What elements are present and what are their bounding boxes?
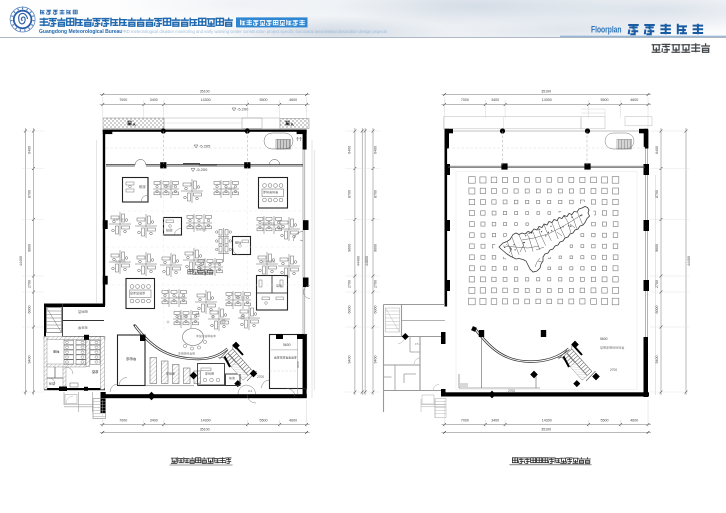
svg-text:Guangdong Meteorological Burea: Guangdong Meteorological Bureau [39, 29, 122, 35]
svg-text:14300: 14300 [201, 98, 211, 102]
svg-text:2700: 2700 [348, 280, 352, 288]
svg-text:44400: 44400 [687, 256, 691, 266]
svg-text:4600: 4600 [630, 419, 638, 423]
svg-text:5500: 5500 [260, 419, 268, 423]
svg-text:-5.205: -5.205 [199, 144, 211, 149]
svg-text:5500: 5500 [260, 98, 268, 102]
svg-text:7000: 7000 [461, 419, 469, 423]
svg-text:35100: 35100 [541, 428, 551, 432]
svg-text:14300: 14300 [201, 419, 211, 423]
svg-text:4600: 4600 [289, 98, 297, 102]
svg-text:35100: 35100 [200, 89, 210, 93]
svg-text:7000: 7000 [461, 98, 469, 102]
svg-text:6000: 6000 [28, 306, 32, 314]
svg-text:9400: 9400 [374, 356, 378, 364]
svg-text:2700: 2700 [374, 280, 378, 288]
svg-text:3400: 3400 [491, 419, 499, 423]
svg-text:5600: 5600 [283, 343, 291, 347]
svg-text:5500: 5500 [601, 419, 609, 423]
svg-text:3400: 3400 [150, 98, 158, 102]
svg-text:14300: 14300 [542, 98, 552, 102]
svg-text:44800: 44800 [365, 256, 369, 266]
svg-text:-5.200: -5.200 [196, 167, 208, 172]
svg-text:8700: 8700 [348, 190, 352, 198]
svg-text:3-1: 3-1 [248, 389, 253, 393]
svg-text:8700: 8700 [655, 190, 659, 198]
svg-text:PRD meteorological disaster mo: PRD meteorological disaster monitoring a… [121, 29, 387, 34]
svg-text:9600: 9600 [348, 244, 352, 252]
svg-text:7000: 7000 [119, 98, 127, 102]
svg-text:2700: 2700 [610, 368, 617, 372]
svg-text:9400: 9400 [655, 356, 659, 364]
svg-text:6400: 6400 [28, 146, 32, 154]
svg-text:14300: 14300 [542, 419, 552, 423]
svg-text:6400: 6400 [348, 146, 352, 154]
svg-text:6000: 6000 [348, 306, 352, 314]
svg-text:9600: 9600 [655, 244, 659, 252]
svg-text:9400: 9400 [28, 356, 32, 364]
svg-text:2700: 2700 [28, 280, 32, 288]
svg-text:3400: 3400 [491, 98, 499, 102]
svg-text:44400: 44400 [357, 256, 361, 266]
svg-text:6400: 6400 [655, 146, 659, 154]
svg-text:2700: 2700 [508, 389, 515, 393]
svg-text:7000: 7000 [119, 419, 127, 423]
svg-text:3400: 3400 [150, 419, 158, 423]
svg-text:9400: 9400 [348, 356, 352, 364]
svg-text:F5.1: F5.1 [415, 342, 421, 346]
svg-text:4600: 4600 [289, 419, 297, 423]
svg-text:6400: 6400 [374, 146, 378, 154]
svg-text:8700: 8700 [374, 190, 378, 198]
svg-text:2700: 2700 [257, 375, 264, 379]
svg-text:35100: 35100 [541, 89, 551, 93]
svg-text:5600: 5600 [600, 337, 608, 341]
svg-text:4600: 4600 [630, 98, 638, 102]
svg-text:9600: 9600 [296, 361, 300, 368]
svg-text:8700: 8700 [28, 190, 32, 198]
svg-text:44400: 44400 [19, 256, 23, 266]
svg-text:6000: 6000 [655, 306, 659, 314]
svg-text:9600: 9600 [374, 244, 378, 252]
svg-text:35100: 35100 [200, 428, 210, 432]
svg-text:2700: 2700 [655, 280, 659, 288]
svg-text:9600: 9600 [28, 244, 32, 252]
svg-text:6000: 6000 [374, 306, 378, 314]
svg-text:Floorplan: Floorplan [591, 25, 622, 35]
svg-text:5500: 5500 [601, 98, 609, 102]
